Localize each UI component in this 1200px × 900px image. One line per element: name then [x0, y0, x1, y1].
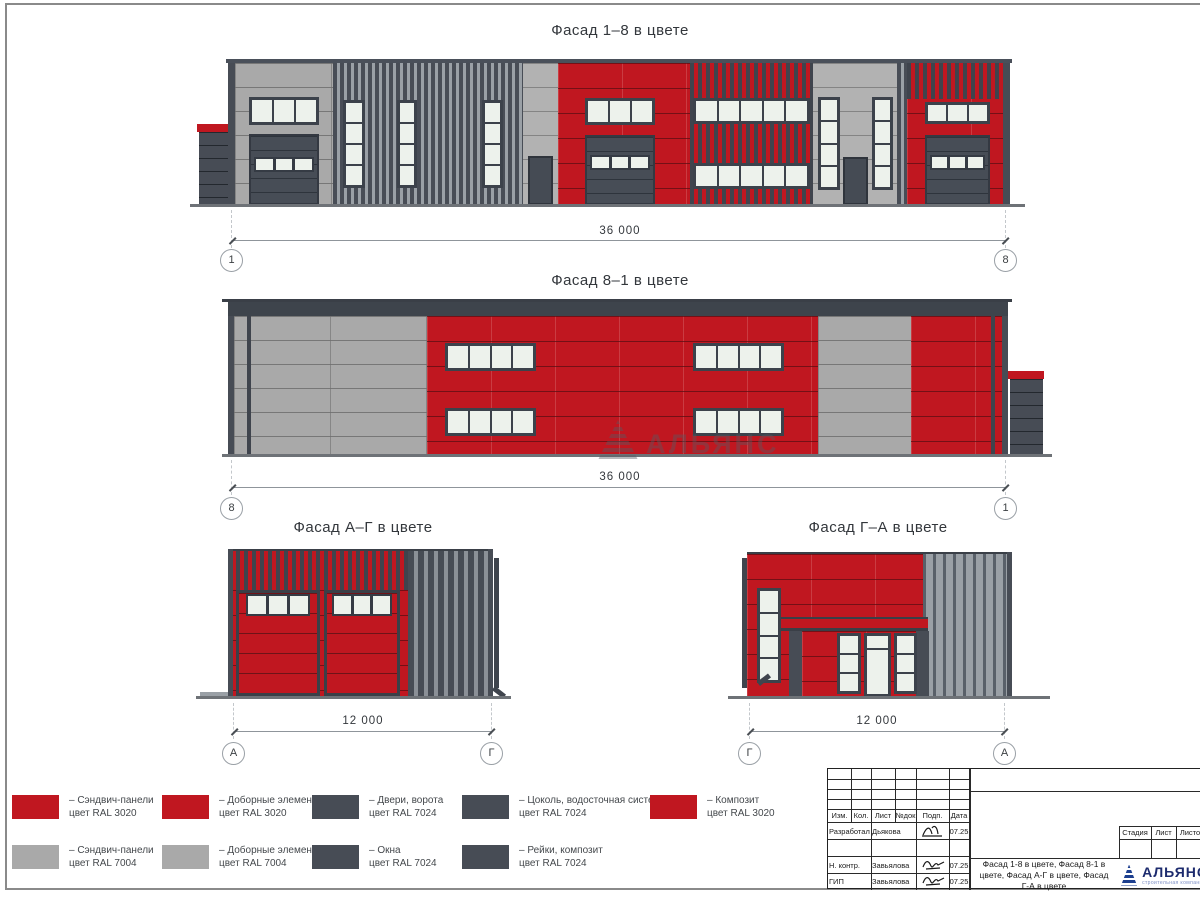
legend-label: – Цоколь, водосточная система — [519, 795, 666, 808]
axis-bubble: Г — [738, 742, 761, 765]
tb-name: Завьялова — [872, 861, 916, 870]
tb-role: ГИП — [829, 877, 871, 886]
signature — [920, 874, 947, 887]
door — [528, 156, 553, 205]
extension-line — [1005, 210, 1006, 248]
tb-line — [828, 799, 969, 800]
legend-swatch — [462, 795, 509, 819]
dimension-line — [232, 487, 1006, 488]
gate-window-strip — [254, 157, 314, 172]
window — [693, 343, 784, 371]
window-tall — [482, 100, 503, 188]
legend-label: – Доборные элементы — [219, 845, 324, 858]
legend-swatch — [162, 845, 209, 869]
dimension-text: 12 000 — [797, 715, 957, 727]
wall-slats — [897, 63, 907, 205]
wall-red-panels — [911, 316, 1002, 455]
window — [445, 408, 536, 436]
tb-stage-header: Лист — [1151, 828, 1176, 837]
tb-stage-header: Стадия — [1119, 828, 1151, 837]
legend-swatch — [162, 795, 209, 819]
tb-line — [969, 791, 1200, 792]
downspout — [991, 316, 995, 455]
legend-label: – Двери, ворота — [369, 795, 443, 808]
legend-swatch — [650, 795, 697, 819]
legend-ral: цвет RAL 7004 — [219, 858, 324, 871]
frame-top — [5, 3, 1200, 5]
tb-header: Лист — [871, 811, 895, 820]
window-tall — [397, 100, 417, 188]
facade-g-a-title: Фасад Г–А в цвете — [728, 519, 1028, 536]
gate-window-strip — [930, 155, 985, 170]
tb-role: Разработал — [829, 827, 871, 836]
axis-bubble: Г — [480, 742, 503, 765]
tb-header: Дата — [949, 811, 969, 820]
legend-item: – Доборные элементыцвет RAL 7004 — [162, 845, 324, 870]
downspout — [494, 558, 499, 688]
tb-name: Дьякова — [872, 827, 916, 836]
corner-trim — [1002, 316, 1008, 455]
legend-label: – Доборные элементы — [219, 795, 324, 808]
legend-ral: цвет RAL 3020 — [707, 808, 775, 821]
watermark: АЛЬЯНС — [598, 420, 780, 460]
legend-item: – Цоколь, водосточная системацвет RAL 70… — [462, 795, 666, 820]
window-tall — [757, 588, 781, 683]
legend-ral: цвет RAL 7024 — [369, 808, 443, 821]
tb-line — [828, 839, 969, 840]
downspout — [742, 558, 747, 688]
window — [445, 343, 536, 371]
legend-ral: цвет RAL 7004 — [69, 858, 154, 871]
downspout — [247, 316, 251, 455]
tb-line — [828, 789, 969, 790]
dimension-line — [232, 240, 1006, 241]
logo-triangle-icon — [1121, 865, 1137, 886]
signature — [920, 824, 947, 838]
window — [925, 102, 990, 124]
tb-line — [828, 779, 969, 780]
legend-ral: цвет RAL 7024 — [519, 858, 603, 871]
legend-ral: цвет RAL 3020 — [69, 808, 154, 821]
ground-line — [190, 204, 1025, 207]
logo-subtitle: строительная компания — [1142, 880, 1200, 886]
window-tall — [343, 100, 365, 188]
tb-header: Кол. — [851, 811, 871, 820]
ground-line — [728, 696, 1050, 699]
door — [843, 157, 868, 205]
legend-item: – Доборные элементыцвет RAL 3020 — [162, 795, 324, 820]
wall-gray-panels — [818, 316, 911, 455]
tb-date: 07.25 — [949, 877, 969, 886]
corner-trim — [228, 549, 233, 698]
legend-item: – Сэндвич-панелицвет RAL 3020 — [12, 795, 154, 820]
legend-label: – Сэндвич-панели — [69, 795, 154, 808]
fascia-band — [228, 302, 1008, 316]
drawing-sheet: Фасад 1–8 в цвете 36 000 1 8 Фасад 8–1 в… — [0, 0, 1200, 900]
wall-slats — [923, 552, 1012, 698]
wall-gray-panels — [234, 316, 427, 455]
gate-window-strip — [332, 594, 392, 616]
tb-line — [828, 822, 969, 823]
window-band — [693, 98, 810, 124]
legend-ral: цвет RAL 7024 — [369, 858, 437, 871]
legend-swatch — [312, 795, 359, 819]
entrance-post — [916, 631, 929, 697]
side-return-cap — [1008, 371, 1044, 379]
extension-line — [491, 703, 492, 739]
legend-item: – Окнацвет RAL 7024 — [312, 845, 437, 870]
tb-sheet-title: Фасад 1-8 в цвете, Фасад 8-1 в цвете, Фа… — [971, 861, 1117, 889]
axis-bubble: 1 — [220, 249, 243, 272]
gate — [925, 135, 990, 205]
tb-stage-header: Листов — [1176, 828, 1200, 837]
dimension-text: 12 000 — [283, 715, 443, 727]
dimension-text: 36 000 — [540, 225, 700, 237]
dimension-line — [750, 731, 1005, 732]
legend-label: – Композит — [707, 795, 775, 808]
ground-line — [196, 696, 511, 699]
signature — [920, 858, 947, 871]
tb-header: Подп. — [916, 811, 949, 820]
tb-line — [828, 856, 969, 857]
gate-window-strip — [590, 155, 650, 170]
dimension-text: 36 000 — [540, 471, 700, 483]
tb-line — [1119, 826, 1200, 827]
extension-line — [1004, 703, 1005, 739]
legend-swatch — [12, 795, 59, 819]
window — [249, 97, 319, 125]
entrance-post — [789, 631, 802, 697]
entrance-door — [864, 633, 891, 697]
facade-8-1-title: Фасад 8–1 в цвете — [440, 272, 800, 289]
corner-trim — [228, 63, 235, 205]
axis-bubble: А — [222, 742, 245, 765]
axis-bubble: А — [993, 742, 1016, 765]
title-block: Изм. Кол. Лист №док Подп. Дата Разработа… — [827, 768, 1200, 889]
legend-item: – Рейки, композитцвет RAL 7024 — [462, 845, 603, 870]
tb-header: №док — [895, 811, 916, 820]
frame-left — [5, 3, 7, 889]
tb-header: Изм. — [828, 811, 851, 820]
tb-name: Завьялова — [872, 877, 916, 886]
watermark-text: АЛЬЯНС — [646, 429, 780, 460]
legend-swatch — [12, 845, 59, 869]
window-band — [693, 163, 810, 189]
gate-window-strip — [246, 594, 310, 616]
tb-line — [1119, 839, 1200, 840]
legend-ral: цвет RAL 3020 — [219, 808, 324, 821]
wall-slats — [408, 549, 493, 698]
axis-bubble: 1 — [994, 497, 1017, 520]
legend-item: – Композитцвет RAL 3020 — [650, 795, 775, 820]
window-tall — [837, 633, 861, 694]
window-tall — [894, 633, 917, 694]
window-tall — [872, 97, 893, 190]
company-logo: АЛЬЯНС строительная компания — [1121, 862, 1200, 888]
tb-line — [916, 769, 917, 890]
facade-a-g-title: Фасад А–Г в цвете — [213, 519, 513, 536]
corner-trim — [1007, 552, 1012, 698]
tb-date: 07.25 — [949, 827, 969, 836]
window-tall — [818, 97, 840, 190]
tb-line — [828, 873, 969, 874]
window — [585, 98, 655, 125]
facade-1-8-title: Фасад 1–8 в цвете — [440, 22, 800, 39]
legend-swatch — [462, 845, 509, 869]
legend-label: – Сэндвич-панели — [69, 845, 154, 858]
gate — [585, 135, 655, 205]
watermark-logo-triangle — [598, 420, 638, 460]
tb-role: Н. контр. — [829, 861, 871, 870]
axis-bubble: 8 — [994, 249, 1017, 272]
corner-trim — [1003, 63, 1010, 205]
logo-name: АЛЬЯНС — [1142, 864, 1200, 880]
extension-line — [1005, 460, 1006, 495]
legend-swatch — [312, 845, 359, 869]
axis-bubble: 8 — [220, 497, 243, 520]
wall-red-slats — [228, 549, 408, 590]
corner-trim — [488, 549, 493, 698]
tb-line — [828, 809, 969, 810]
dimension-line — [234, 731, 492, 732]
legend-item: – Двери, воротацвет RAL 7024 — [312, 795, 443, 820]
side-return — [1010, 379, 1043, 455]
entrance-canopy — [781, 617, 928, 631]
legend-ral: цвет RAL 7024 — [519, 808, 666, 821]
legend-label: – Окна — [369, 845, 437, 858]
side-return — [199, 132, 228, 205]
wall-red-slats — [907, 63, 1003, 99]
tb-date: 07.25 — [949, 861, 969, 870]
legend-item: – Сэндвич-панелицвет RAL 7004 — [12, 845, 154, 870]
legend-label: – Рейки, композит — [519, 845, 603, 858]
side-return-cap — [197, 124, 230, 132]
